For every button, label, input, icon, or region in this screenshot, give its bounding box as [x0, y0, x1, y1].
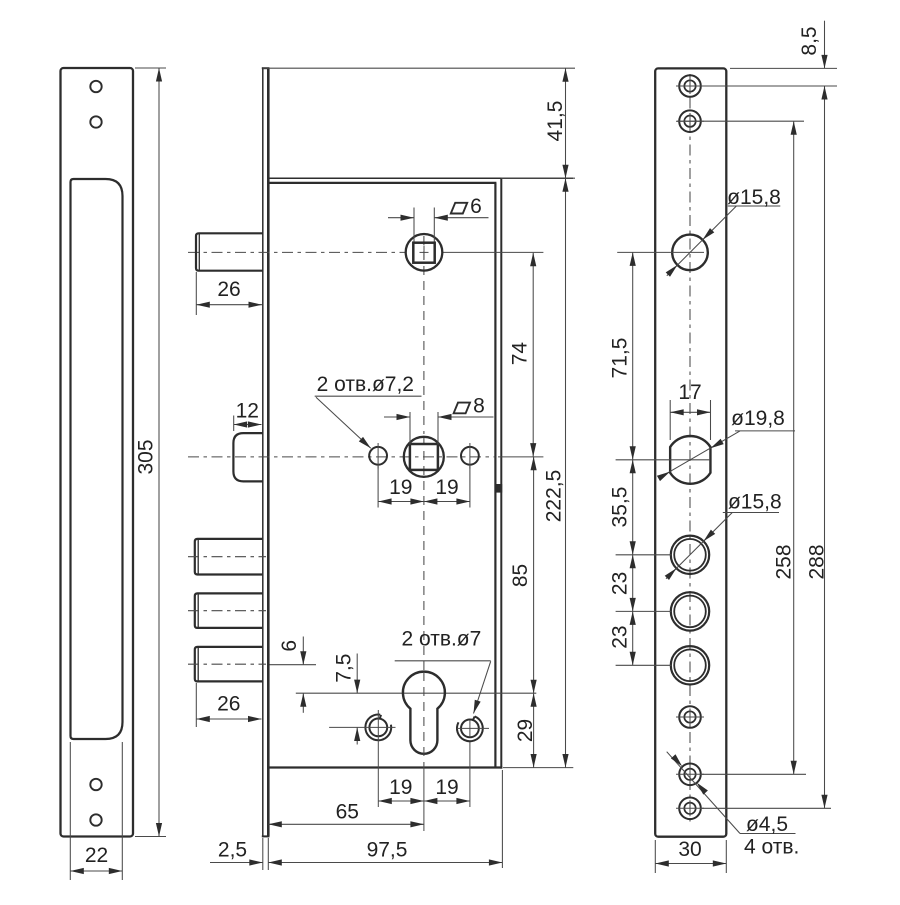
svg-text:23: 23 — [609, 572, 632, 595]
svg-text:97,5: 97,5 — [367, 839, 408, 862]
svg-text:35,5: 35,5 — [609, 487, 632, 528]
svg-text:258: 258 — [773, 544, 796, 579]
svg-text:8: 8 — [473, 395, 485, 418]
svg-text:26: 26 — [217, 693, 240, 716]
svg-text:19: 19 — [389, 776, 412, 799]
svg-text:29: 29 — [514, 719, 537, 742]
svg-text:19: 19 — [435, 776, 458, 799]
svg-text:30: 30 — [678, 838, 701, 861]
svg-text:19: 19 — [435, 476, 458, 499]
svg-text:41,5: 41,5 — [544, 101, 567, 142]
svg-text:4 отв.: 4 отв. — [744, 835, 799, 858]
svg-text:23: 23 — [609, 625, 632, 648]
svg-text:ø19,8: ø19,8 — [731, 407, 785, 430]
svg-text:26: 26 — [217, 278, 240, 301]
svg-text:12: 12 — [236, 400, 259, 423]
svg-text:6: 6 — [278, 640, 301, 652]
svg-text:85: 85 — [509, 564, 532, 587]
svg-text:6: 6 — [470, 195, 482, 218]
svg-text:222,5: 222,5 — [543, 470, 566, 523]
svg-text:ø15,8: ø15,8 — [728, 491, 782, 514]
svg-text:2,5: 2,5 — [218, 839, 247, 862]
svg-text:65: 65 — [336, 801, 359, 824]
svg-text:2 отв.ø7: 2 отв.ø7 — [401, 628, 481, 651]
svg-text:17: 17 — [678, 381, 701, 404]
svg-text:8,5: 8,5 — [798, 26, 821, 55]
svg-text:74: 74 — [509, 342, 532, 366]
svg-text:305: 305 — [135, 439, 158, 474]
svg-text:71,5: 71,5 — [609, 338, 632, 379]
svg-text:288: 288 — [806, 544, 829, 579]
svg-text:7,5: 7,5 — [333, 654, 356, 683]
svg-text:ø4,5: ø4,5 — [746, 813, 788, 836]
svg-text:22: 22 — [85, 844, 108, 867]
svg-text:ø15,8: ø15,8 — [727, 186, 781, 209]
svg-text:19: 19 — [389, 476, 412, 499]
svg-text:2 отв.ø7,2: 2 отв.ø7,2 — [317, 373, 414, 396]
